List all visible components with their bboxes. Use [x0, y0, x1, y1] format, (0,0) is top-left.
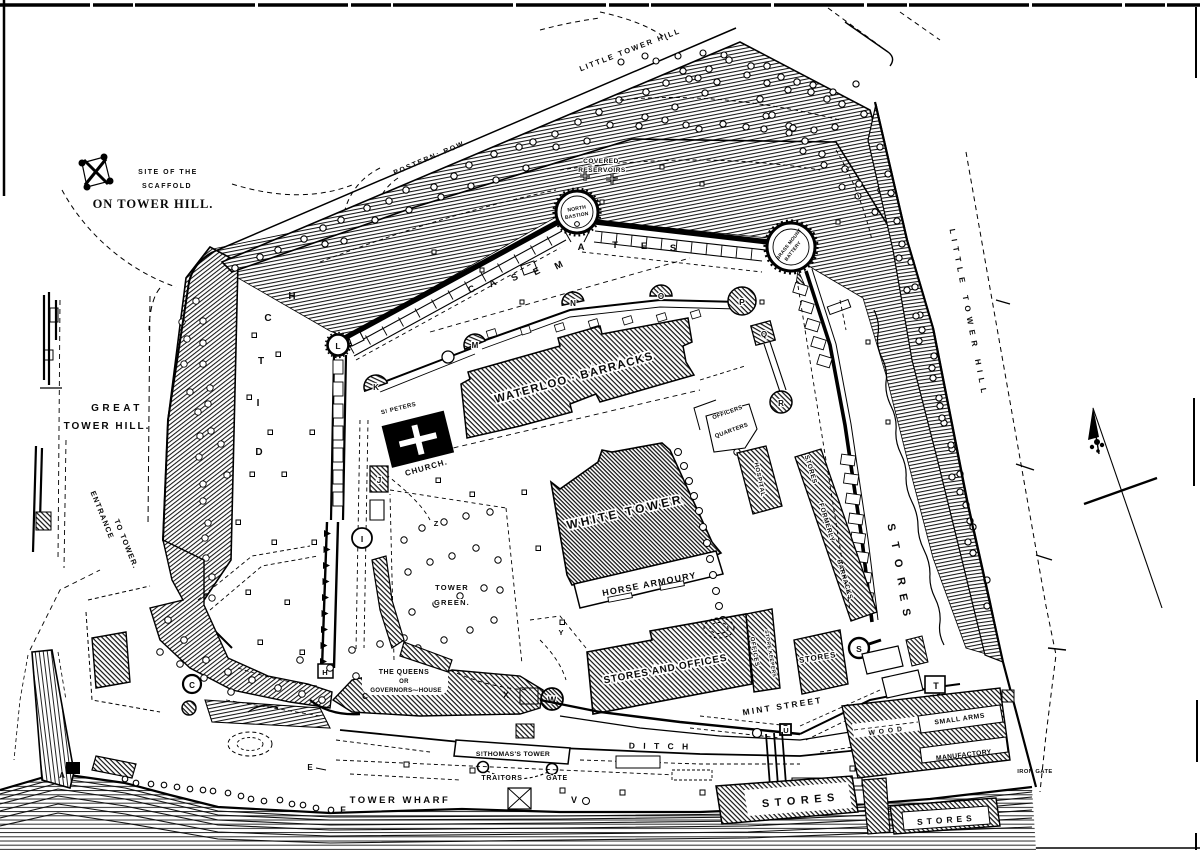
svg-text:GREEN.: GREEN. — [434, 598, 470, 607]
svg-text:TOWER WHARF: TOWER WHARF — [350, 795, 451, 806]
svg-text:GREAT: GREAT — [91, 403, 143, 414]
svg-text:Q: Q — [761, 330, 767, 339]
svg-text:V: V — [571, 795, 577, 805]
svg-text:I: I — [257, 398, 260, 409]
svg-text:SITE OF THE: SITE OF THE — [138, 169, 198, 176]
svg-text:A: A — [59, 771, 65, 780]
svg-text:R: R — [778, 399, 784, 408]
svg-text:COVERED: COVERED — [583, 158, 619, 165]
svg-text:T: T — [258, 356, 264, 367]
svg-text:T: T — [933, 681, 939, 691]
svg-text:U: U — [783, 726, 788, 735]
svg-text:TOWER HILL.: TOWER HILL. — [64, 421, 151, 432]
svg-text:TOWER: TOWER — [435, 583, 469, 592]
svg-text:C: C — [362, 692, 368, 701]
svg-text:O: O — [658, 292, 664, 301]
svg-text:T: T — [612, 240, 618, 251]
svg-text:GOVERNORS⁓HOUSE: GOVERNORS⁓HOUSE — [370, 687, 441, 694]
svg-text:S: S — [670, 243, 676, 254]
svg-text:D I T C H: D I T C H — [629, 740, 692, 751]
svg-text:TRAITORS: TRAITORS — [481, 775, 522, 782]
svg-text:C: C — [264, 313, 271, 324]
svg-text:N: N — [570, 299, 576, 308]
svg-text:J: J — [377, 475, 382, 485]
svg-text:E: E — [641, 241, 647, 252]
svg-text:C: C — [189, 681, 195, 690]
svg-text:M: M — [472, 341, 479, 350]
svg-text:A: A — [578, 242, 585, 253]
svg-text:Z: Z — [434, 519, 439, 528]
svg-text:Y: Y — [558, 628, 563, 637]
svg-text:OR: OR — [399, 679, 409, 685]
svg-text:THE QUEENS: THE QUEENS — [379, 669, 430, 676]
svg-text:GATE: GATE — [546, 775, 568, 782]
svg-text:S: S — [856, 644, 862, 654]
svg-text:I: I — [361, 534, 363, 544]
svg-text:E: E — [307, 763, 313, 772]
svg-text:F: F — [340, 805, 346, 815]
svg-text:D: D — [255, 447, 262, 458]
svg-text:H: H — [288, 291, 295, 302]
svg-text:SCAFFOLD: SCAFFOLD — [142, 183, 192, 190]
svg-text:P: P — [739, 297, 745, 307]
svg-text:ON TOWER HILL.: ON TOWER HILL. — [93, 197, 214, 211]
svg-text:IRON GATE: IRON GATE — [1017, 769, 1052, 775]
svg-text:S!THOMAS'S TOWER: S!THOMAS'S TOWER — [476, 751, 550, 758]
svg-text:X: X — [503, 690, 509, 700]
svg-text:K: K — [373, 383, 379, 392]
svg-text:L: L — [335, 341, 340, 351]
